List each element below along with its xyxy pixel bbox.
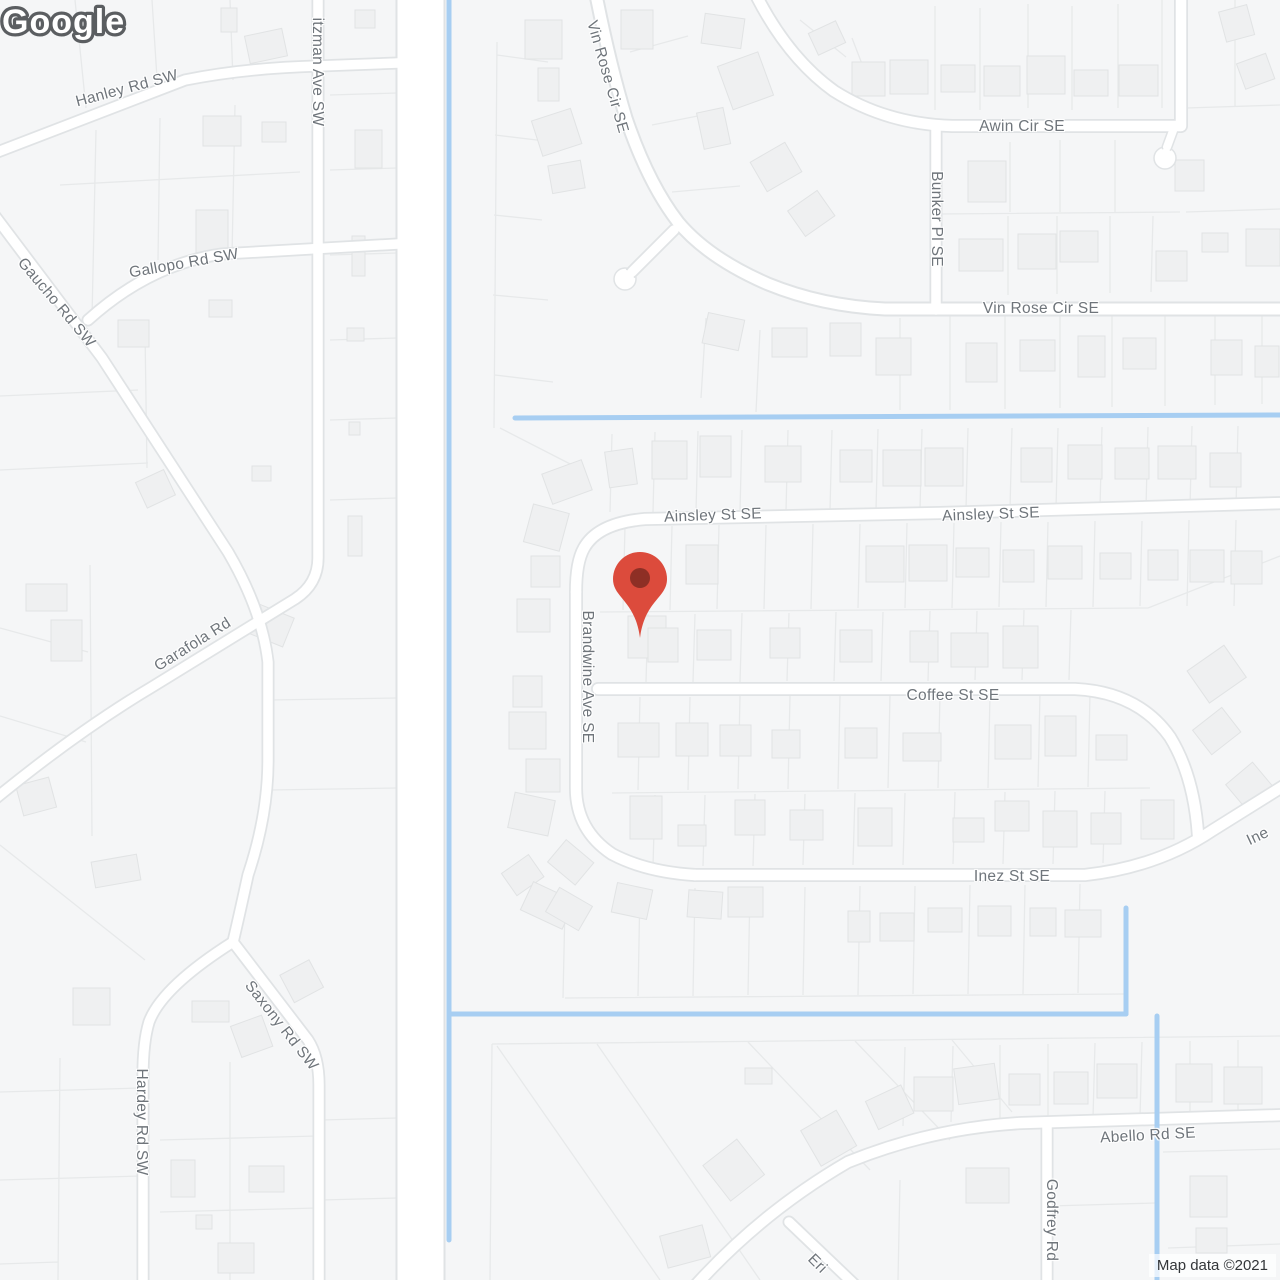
svg-text:Google: Google [2,3,125,41]
google-logo[interactable]: Google [0,0,130,44]
map-attribution: Map data ©2021 [1149,1254,1276,1277]
map-canvas[interactable]: Hanley Rd SW itzman Ave SW Gaucho Rd SW … [0,0,1280,1280]
map-graphics [0,0,1280,1280]
houses-layer [16,5,1280,1273]
pin-inner-dot [630,568,650,588]
